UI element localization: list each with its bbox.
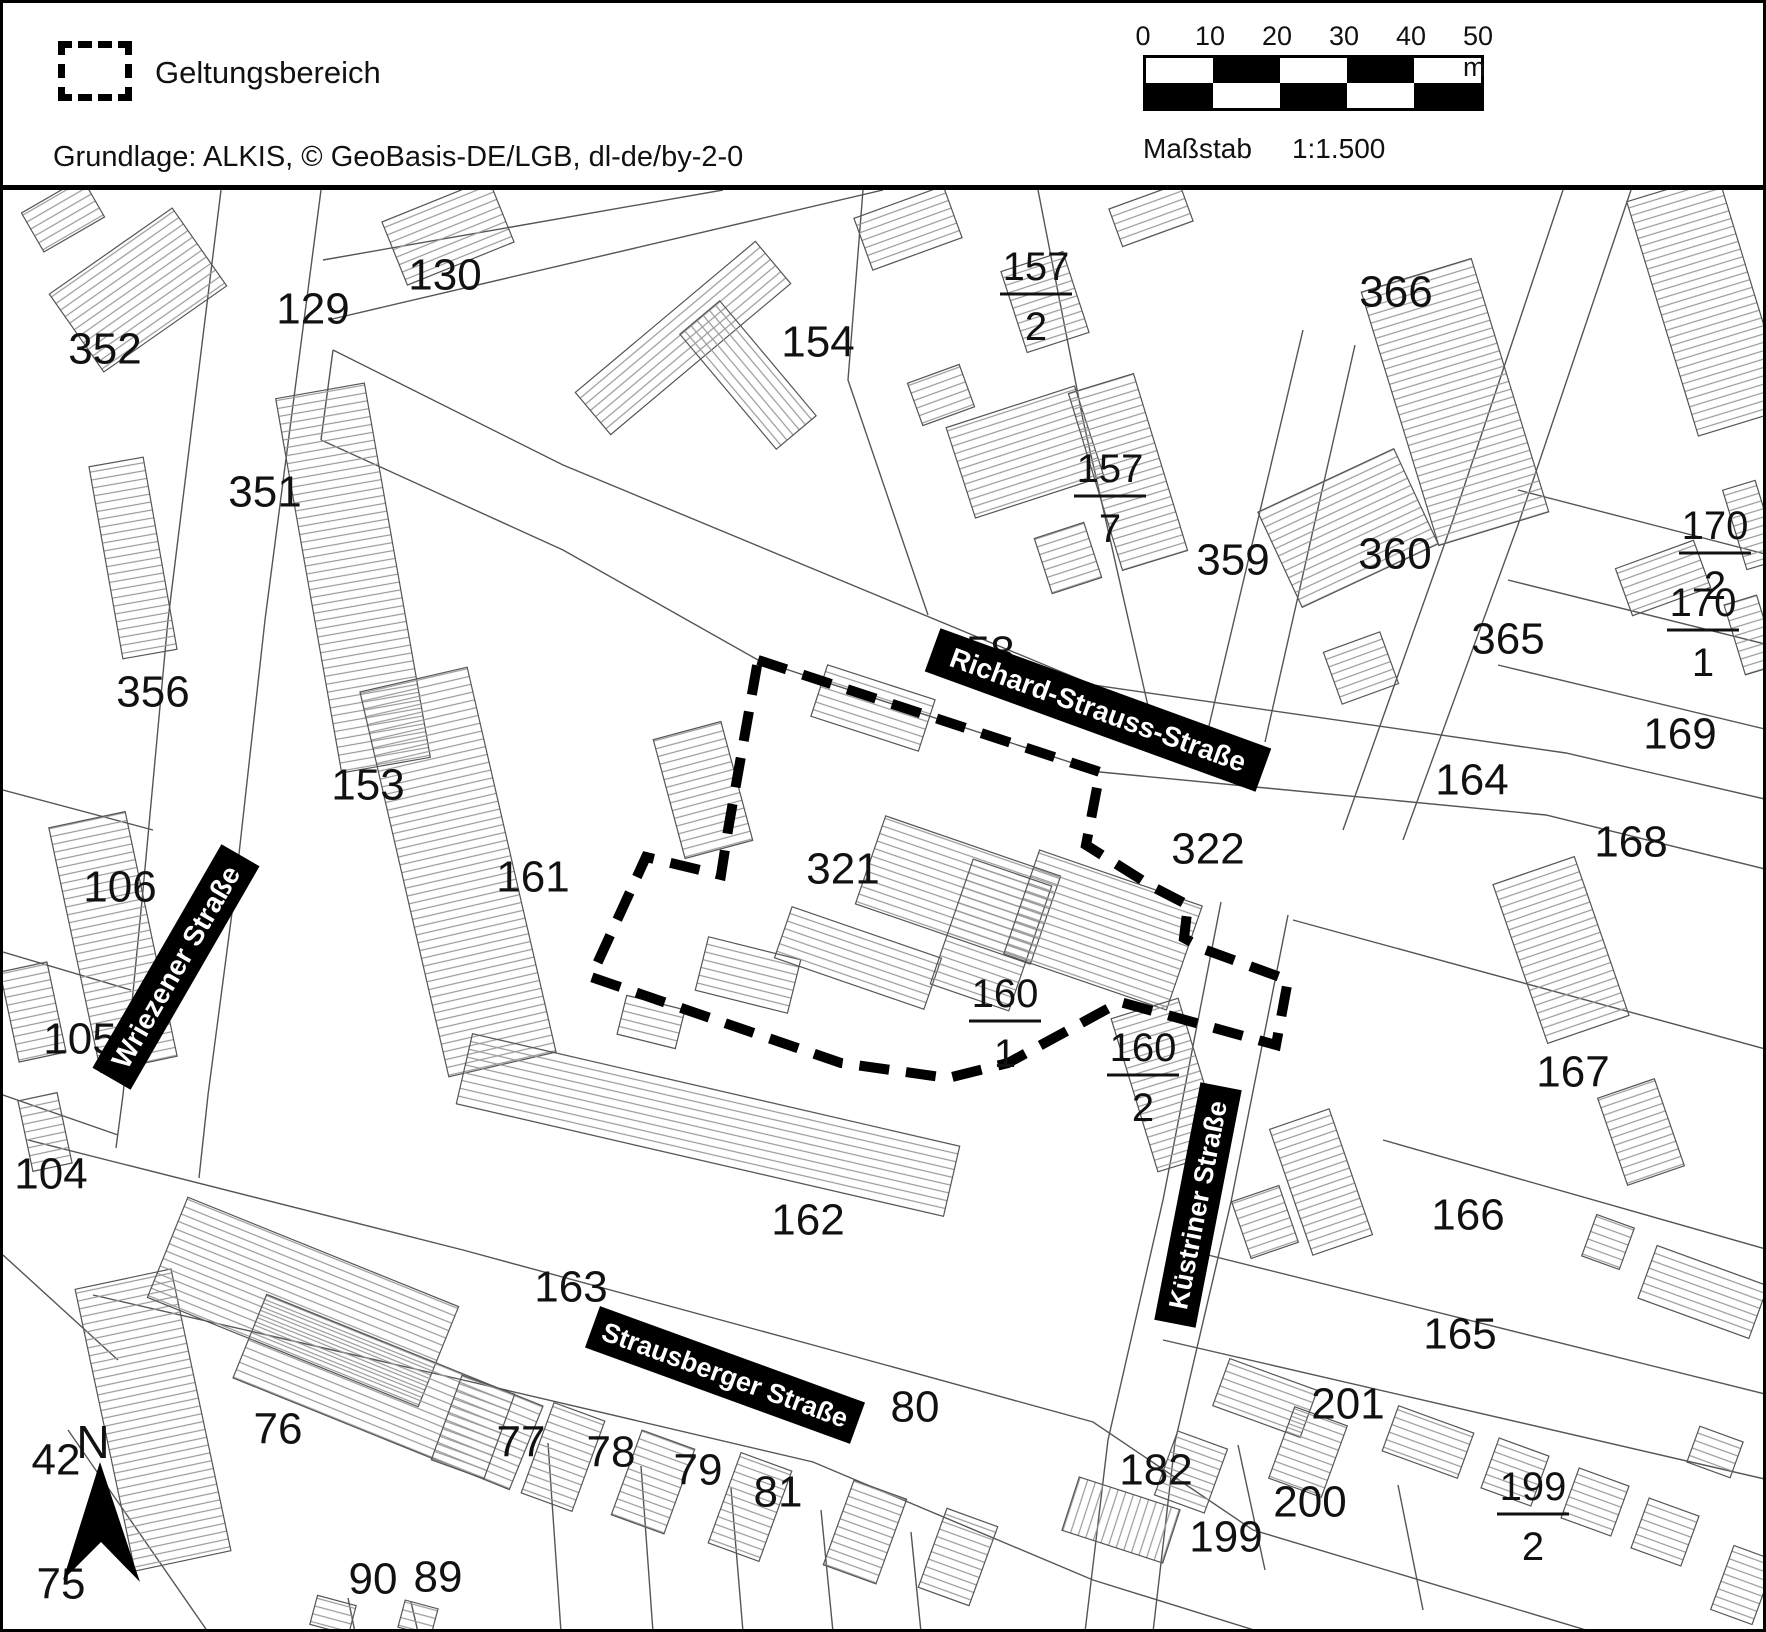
scale-tick: 20 <box>1262 21 1292 52</box>
building-hatch-rect <box>1561 1468 1629 1536</box>
parcel-boundary-line <box>1498 665 1766 730</box>
building-footprint <box>1258 449 1438 608</box>
parcel-label-76: 76 <box>254 1405 303 1454</box>
building-footprint <box>1232 1185 1299 1258</box>
scale-bar-ticks: 01020304050 m <box>1143 21 1483 55</box>
scale-caption: Maßstab1:1.500 <box>1143 133 1385 165</box>
parcel-label-154: 154 <box>781 318 854 367</box>
parcel-label-163: 163 <box>534 1263 607 1312</box>
scale-bar-row-top <box>1146 58 1481 83</box>
parcel-label-200: 200 <box>1273 1478 1346 1527</box>
fraction-denominator: 2 <box>1132 1086 1154 1130</box>
building-hatch-rect <box>653 722 752 859</box>
parcel-label-199: 199 <box>1189 1513 1262 1562</box>
building-hatch-rect <box>398 1600 438 1632</box>
parcel-label-360: 360 <box>1358 530 1431 579</box>
building-footprint <box>617 995 685 1048</box>
building-hatch-rect <box>1631 1498 1699 1566</box>
scale-tick: 50 m <box>1463 21 1493 83</box>
scale-tick: 30 <box>1329 21 1359 52</box>
building-hatch-rect <box>918 1508 997 1605</box>
building-hatch-rect <box>21 190 104 252</box>
fraction-denominator: 1 <box>994 1032 1016 1076</box>
scale-tick: 40 <box>1396 21 1426 52</box>
building-hatch-rect <box>1109 190 1193 247</box>
building-hatch-rect <box>456 1034 959 1217</box>
parcel-label-201: 201 <box>1311 1380 1384 1429</box>
building-hatch-rect <box>854 190 962 270</box>
building-footprint <box>1561 1468 1629 1536</box>
parcel-label-351: 351 <box>228 468 301 517</box>
building-hatch-rect <box>1258 449 1438 608</box>
building-hatch-rect <box>89 457 177 659</box>
parcel-fraction-label-160-1: 1601 <box>969 972 1041 1076</box>
building-footprint <box>456 1034 959 1217</box>
building-hatch-rect <box>1034 522 1101 593</box>
fraction-denominator: 7 <box>1099 507 1121 551</box>
parcel-label-162: 162 <box>771 1196 844 1245</box>
parcel-label-365: 365 <box>1471 615 1544 664</box>
building-footprint <box>21 190 104 252</box>
parcel-label-42: 42 <box>32 1436 81 1485</box>
parcel-label-80: 80 <box>891 1383 940 1432</box>
fraction-denominator: 2 <box>1522 1525 1544 1569</box>
parcel-label-81: 81 <box>754 1468 803 1517</box>
parcel-label-164: 164 <box>1435 756 1508 805</box>
scale-bar-row-bottom <box>1146 83 1481 108</box>
street-label-text: Strausberger Straße <box>598 1317 852 1434</box>
building-hatch-rect <box>1638 1246 1766 1339</box>
parcel-boundary-line <box>821 1510 833 1632</box>
parcel-label-167: 167 <box>1536 1048 1609 1097</box>
attribution-text: Grundlage: ALKIS, © GeoBasis-DE/LGB, dl-… <box>53 141 743 174</box>
scale-bar: 01020304050 m <box>1143 21 1483 111</box>
fraction-numerator: 157 <box>1077 447 1144 491</box>
scale-tick: 0 <box>1135 21 1150 52</box>
building-hatch-rect <box>617 995 685 1048</box>
building-footprint <box>1382 1406 1474 1478</box>
parcel-label-166: 166 <box>1431 1191 1504 1240</box>
building-footprint <box>1638 1246 1766 1339</box>
scale-tick: 10 <box>1195 21 1225 52</box>
parcel-label-129: 129 <box>276 285 349 334</box>
parcel-label-169: 169 <box>1643 710 1716 759</box>
building-footprint <box>1631 1498 1699 1566</box>
fraction-denominator: 1 <box>1692 641 1714 685</box>
building-footprint <box>653 722 752 859</box>
building-hatch-rect <box>1598 1079 1685 1186</box>
parcel-label-153: 153 <box>331 761 404 810</box>
building-footprint <box>398 1600 438 1632</box>
parcel-label-79: 79 <box>674 1446 723 1495</box>
parcel-fraction-label-170-1: 1701 <box>1667 581 1739 685</box>
parcel-label-75: 75 <box>37 1560 86 1609</box>
parcel-label-366: 366 <box>1359 268 1432 317</box>
fraction-numerator: 157 <box>1003 245 1070 289</box>
building-footprint <box>1627 190 1766 436</box>
scale-value: 1:1.500 <box>1292 133 1385 164</box>
building-footprint <box>1711 1546 1766 1625</box>
parcel-label-161: 161 <box>496 853 569 902</box>
building-footprint <box>1598 1079 1685 1186</box>
fraction-numerator: 199 <box>1500 1465 1567 1509</box>
site-plan-page: Geltungsbereich Grundlage: ALKIS, © GeoB… <box>0 0 1766 1632</box>
building-hatch-rect <box>1232 1185 1299 1258</box>
geltungsbereich-legend-swatch <box>58 41 132 101</box>
building-footprint <box>1687 1426 1743 1477</box>
parcel-label-104: 104 <box>14 1150 87 1199</box>
parcel-label-168: 168 <box>1594 818 1667 867</box>
building-hatch-rect <box>907 364 974 425</box>
building-hatch-rect <box>1323 632 1398 704</box>
street-label-strausberger-stra-e: Strausberger Straße <box>585 1306 865 1444</box>
fraction-numerator: 170 <box>1682 504 1749 548</box>
building-footprint <box>1493 857 1629 1044</box>
building-footprint <box>89 457 177 659</box>
map-canvas: 3521291301543663513593603653561531581691… <box>3 190 1766 1632</box>
building-footprint <box>823 1480 906 1584</box>
building-hatch-rect <box>1382 1406 1474 1478</box>
parcel-boundary-line <box>199 190 321 1178</box>
building-footprint <box>854 190 962 270</box>
parcel-label-356: 356 <box>116 668 189 717</box>
parcel-label-182: 182 <box>1119 1446 1192 1495</box>
street-label-text: Richard-Strauss-Straße <box>946 642 1251 778</box>
scale-caption-word: Maßstab <box>1143 133 1252 164</box>
parcel-label-165: 165 <box>1423 1310 1496 1359</box>
geltungsbereich-legend-label: Geltungsbereich <box>155 55 381 91</box>
building-hatch-rect <box>1687 1426 1743 1477</box>
parcel-label-78: 78 <box>587 1428 636 1477</box>
fraction-denominator: 2 <box>1025 305 1047 349</box>
map-header: Geltungsbereich Grundlage: ALKIS, © GeoB… <box>3 3 1763 190</box>
building-footprint <box>1582 1214 1635 1269</box>
building-hatch-rect <box>823 1480 906 1584</box>
building-hatch-rect <box>1582 1214 1635 1269</box>
building-footprint <box>1323 632 1398 704</box>
fraction-numerator: 160 <box>1110 1026 1177 1070</box>
building-footprint <box>1109 190 1193 247</box>
parcel-label-130: 130 <box>408 251 481 300</box>
parcel-fraction-label-199-2: 1992 <box>1497 1465 1569 1569</box>
parcel-label-89: 89 <box>414 1553 463 1602</box>
parcel-label-359: 359 <box>1196 536 1269 585</box>
parcel-label-321: 321 <box>806 845 879 894</box>
parcel-label-106: 106 <box>83 863 156 912</box>
north-label: N <box>76 1416 109 1468</box>
building-hatch-rect <box>1711 1546 1766 1625</box>
parcel-boundary-line <box>911 1532 921 1632</box>
fraction-numerator: 160 <box>972 972 1039 1016</box>
parcel-label-77: 77 <box>497 1418 546 1467</box>
fraction-numerator: 170 <box>1670 581 1737 625</box>
parcel-boundary-line <box>321 440 1766 870</box>
building-hatch-rect <box>1627 190 1766 436</box>
building-hatch-rect <box>1493 857 1629 1044</box>
building-footprint <box>907 364 974 425</box>
parcel-label-322: 322 <box>1171 825 1244 874</box>
building-footprint <box>918 1508 997 1605</box>
parcel-boundary-line <box>1398 1485 1423 1610</box>
parcel-label-90: 90 <box>349 1555 398 1604</box>
building-footprint <box>1034 522 1101 593</box>
map-canvas-container: 3521291301543663513593603653561531581691… <box>3 190 1766 1632</box>
parcel-label-352: 352 <box>68 325 141 374</box>
scale-bar-graphic <box>1143 55 1484 111</box>
